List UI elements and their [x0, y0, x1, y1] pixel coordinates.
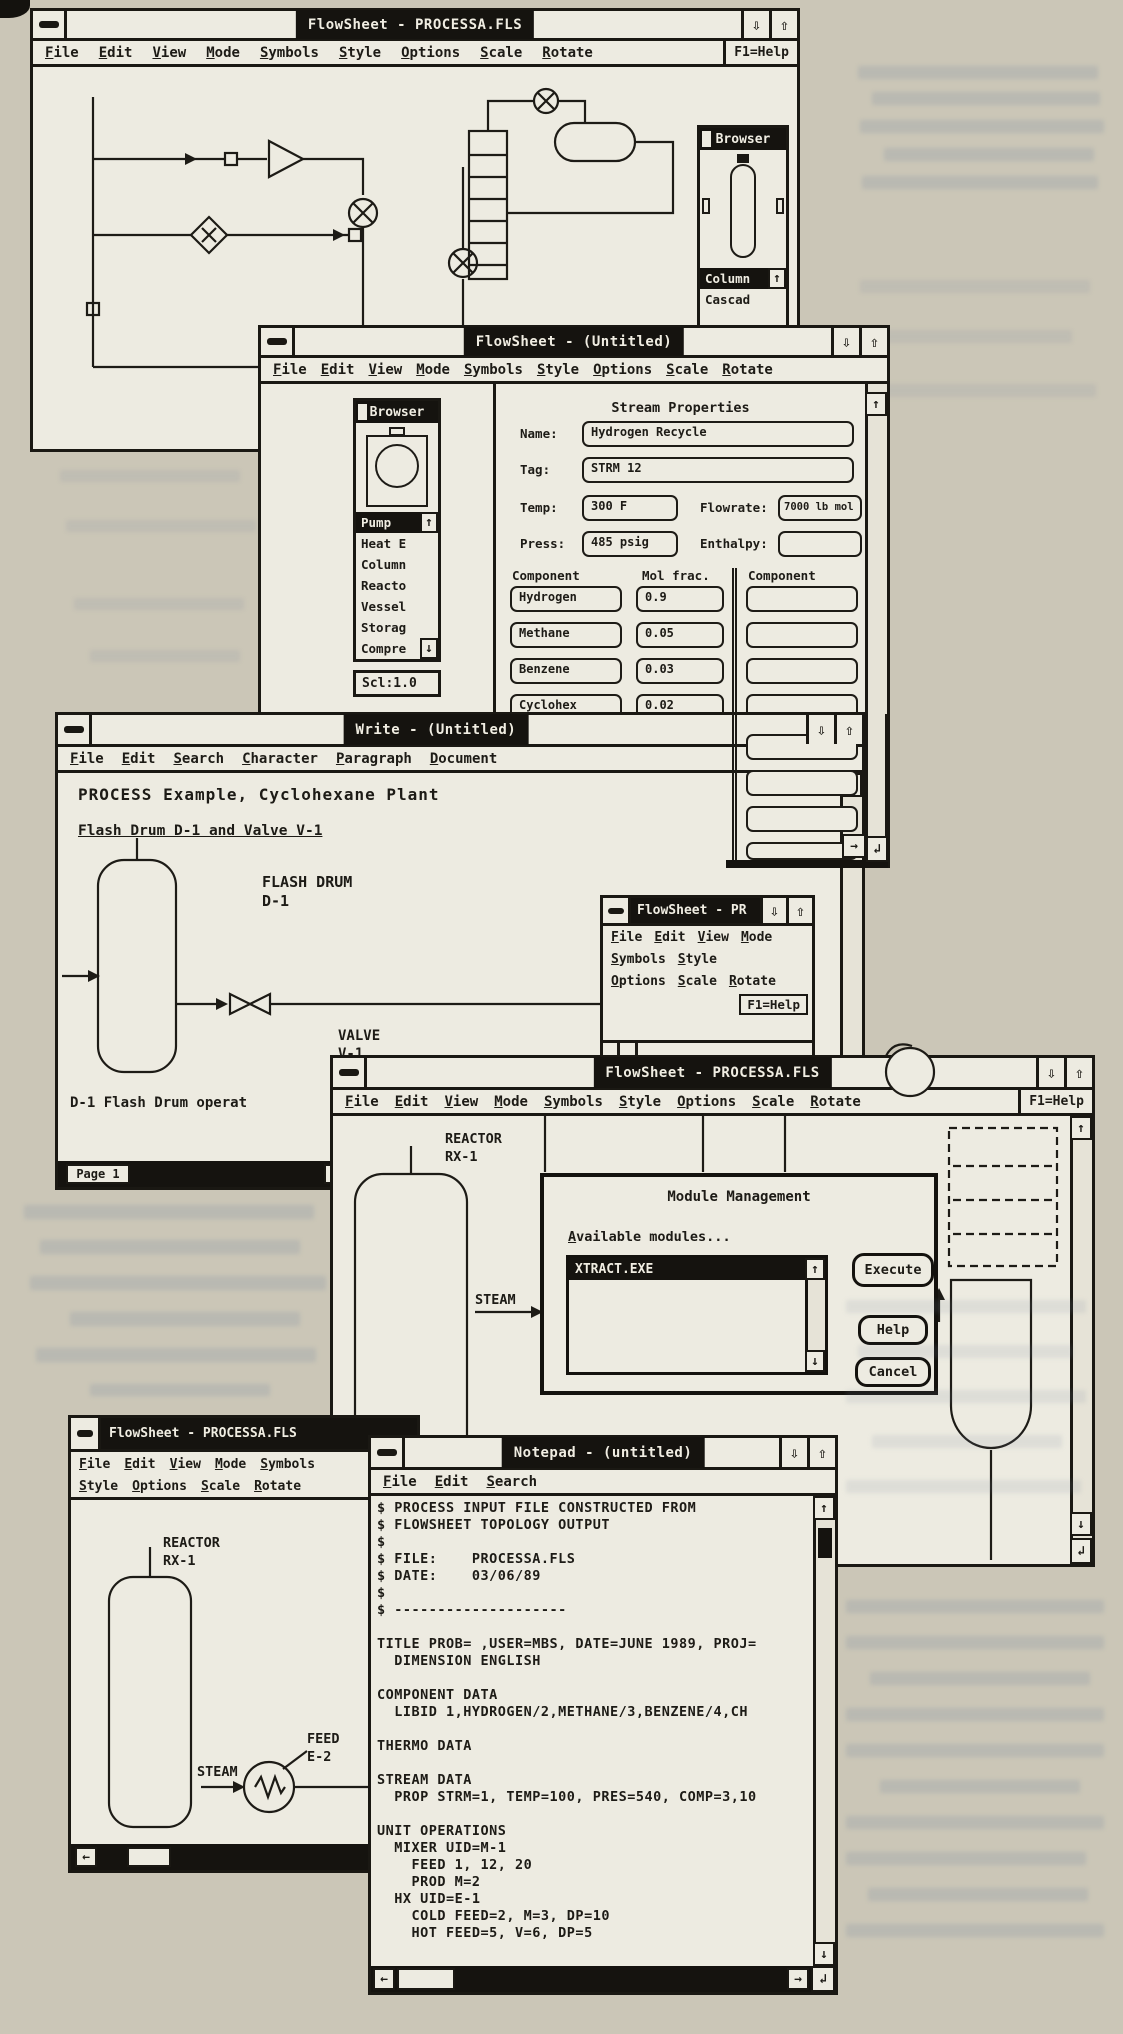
horizontal-scrollbar[interactable]: ← → ↲ — [371, 1966, 835, 1992]
symbol-list: Pump Heat E Column Reacto Vessel Storag … — [356, 512, 438, 659]
minimize-button[interactable]: ⇩ — [741, 11, 769, 38]
scroll-right-button[interactable]: → — [842, 834, 866, 858]
menu-mode[interactable]: Mode — [741, 930, 772, 945]
left-arrow-icon: ← — [82, 1851, 90, 1864]
menu-bar: File Edit View Mode Symbols Style Option… — [261, 358, 887, 384]
menu-file[interactable]: File — [79, 1457, 110, 1472]
menu-bar: File Edit Search Character Paragraph Doc… — [58, 747, 862, 773]
menu-symbols[interactable]: Symbols — [464, 362, 523, 378]
modules-list-label: Available modules... — [568, 1229, 731, 1245]
panel-heading: Stream Properties — [496, 400, 865, 416]
system-menu-button[interactable] — [603, 898, 631, 923]
maximize-button[interactable]: ⇧ — [807, 1438, 835, 1467]
system-menu-icon — [608, 908, 624, 914]
minimize-button[interactable]: ⇩ — [779, 1438, 807, 1467]
scroll-down-button[interactable]: ↓ — [813, 1942, 835, 1966]
col-header-component-2: Component — [748, 568, 816, 583]
corner-arrow-icon: ↲ — [1077, 1545, 1085, 1558]
drum-label: FLASH DRUM D-1 — [262, 873, 352, 911]
up-arrow-icon: ↑ — [773, 272, 781, 285]
menu-view[interactable]: View — [444, 1094, 478, 1110]
menu-style[interactable]: Style — [537, 362, 579, 378]
modules-listbox[interactable]: XTRACT.EXE ↑ ↓ — [566, 1255, 828, 1375]
cancel-button[interactable]: Cancel — [855, 1357, 931, 1387]
menu-rotate[interactable]: Rotate — [254, 1479, 301, 1494]
scroll-down-button[interactable]: ↓ — [1070, 1512, 1092, 1536]
component-field[interactable]: Hydrogen — [510, 586, 622, 612]
side-tab-icon — [702, 198, 710, 214]
execute-button[interactable]: Execute — [852, 1253, 934, 1287]
window-title: FlowSheet - PR — [631, 898, 760, 923]
steam-label: STEAM — [475, 1292, 516, 1308]
menu-bar-row2: Symbols Style — [603, 948, 812, 970]
list-item-cascad[interactable]: Cascad — [700, 289, 786, 310]
f1-help-label: F1=Help — [723, 41, 797, 64]
resize-corner[interactable]: ↲ — [1070, 1538, 1092, 1564]
scrollbar-thumb[interactable] — [397, 1968, 455, 1990]
menu-scale[interactable]: Scale — [480, 45, 522, 61]
menu-bar: File Edit View Mode Symbols Style Option… — [33, 41, 797, 67]
menu-view[interactable]: View — [170, 1457, 201, 1472]
menu-edit[interactable]: Edit — [124, 1457, 155, 1472]
scroll-down-button[interactable]: ↓ — [805, 1350, 825, 1372]
menu-file[interactable]: File — [70, 751, 104, 767]
page-status: Page 1 — [66, 1164, 130, 1184]
window-title: Write - (Untitled) — [344, 714, 529, 745]
module-management-dialog: Module Management Available modules... X… — [540, 1173, 938, 1395]
molfrac-field[interactable]: 0.03 — [636, 658, 724, 684]
menu-file[interactable]: File — [45, 45, 79, 61]
right-arrow-icon: → — [850, 840, 858, 853]
horizontal-scrollbar[interactable]: ← — [71, 1844, 417, 1870]
listbox-scrollbar[interactable]: ↑ ↓ — [805, 1258, 825, 1372]
pump-circle-icon — [375, 444, 419, 488]
scroll-up-button[interactable]: ↑ — [768, 268, 786, 289]
menu-view[interactable]: View — [368, 362, 402, 378]
menu-rotate[interactable]: Rotate — [542, 45, 593, 61]
vertical-scrollbar[interactable]: ↑ ↓ ↲ — [1070, 1116, 1092, 1564]
f1-help-label: F1=Help — [739, 994, 808, 1015]
minimize-button[interactable]: ⇩ — [1036, 1058, 1064, 1087]
temp-label: Temp: — [520, 500, 558, 515]
maximize-icon: ⇧ — [780, 16, 789, 34]
corner-arrow-icon: ↲ — [873, 843, 881, 856]
minimize-icon: ⇩ — [752, 16, 761, 34]
minimize-icon: ⇩ — [1047, 1064, 1056, 1082]
system-menu-button[interactable] — [371, 1438, 405, 1467]
browser-panel: Browser Column Cascad ↑ — [697, 125, 789, 332]
titlebar[interactable]: FlowSheet - PR ⇩ ⇧ — [603, 898, 812, 926]
down-arrow-icon: ↓ — [820, 1948, 828, 1961]
menu-mode[interactable]: Mode — [206, 45, 240, 61]
menu-options[interactable]: Options — [611, 974, 666, 989]
window-title: FlowSheet - PROCESSA.FLS — [296, 10, 534, 39]
system-menu-button[interactable] — [333, 1058, 367, 1087]
list-item-column[interactable]: Column — [356, 554, 438, 575]
flowsheet-drawing — [71, 1503, 417, 1844]
scroll-up-button[interactable]: ↑ — [420, 512, 438, 533]
name-field[interactable]: Hydrogen Recycle — [582, 421, 854, 447]
menu-scale[interactable]: Scale — [678, 974, 717, 989]
resize-corner[interactable]: ↲ — [866, 836, 888, 862]
menu-file[interactable]: File — [345, 1094, 379, 1110]
menu-mode[interactable]: Mode — [416, 362, 450, 378]
menu-symbols[interactable]: Symbols — [544, 1094, 603, 1110]
maximize-icon: ⇧ — [818, 1444, 827, 1462]
enthalpy-label: Enthalpy: — [700, 536, 768, 551]
minimize-icon: ⇩ — [770, 902, 779, 920]
maximize-icon: ⇧ — [845, 721, 854, 739]
window-title: FlowSheet - (Untitled) — [464, 327, 684, 356]
menu-style[interactable]: Style — [79, 1479, 118, 1494]
side-tab-icon — [776, 198, 784, 214]
resize-corner[interactable]: ↲ — [811, 1966, 835, 1992]
scroll-up-button[interactable]: ↑ — [805, 1258, 825, 1280]
scroll-up-button[interactable]: ↑ — [1070, 1116, 1092, 1140]
left-arrow-icon: ← — [380, 1973, 388, 1986]
symbol-preview — [356, 423, 438, 515]
pump-symbol-overlay — [874, 1034, 944, 1104]
menu-rotate[interactable]: Rotate — [810, 1094, 861, 1110]
component-field-empty[interactable] — [746, 658, 858, 684]
maximize-button[interactable]: ⇧ — [769, 11, 797, 38]
menu-style[interactable]: Style — [619, 1094, 661, 1110]
scroll-left-button[interactable]: ← — [75, 1847, 97, 1867]
col-header-component: Component — [512, 568, 580, 583]
menu-scale[interactable]: Scale — [666, 362, 708, 378]
f1-help-label: F1=Help — [1018, 1090, 1092, 1113]
minimize-button[interactable]: ⇩ — [760, 898, 786, 923]
menu-options[interactable]: Options — [132, 1479, 187, 1494]
list-item-reacto[interactable]: Reacto — [356, 575, 438, 596]
menu-bar-row3: Options Scale Rotate — [603, 970, 812, 992]
menu-style[interactable]: Style — [339, 45, 381, 61]
scale-readout: Scl:1.0 — [353, 670, 441, 697]
dialog-title: Module Management — [544, 1189, 934, 1205]
steam-label: STEAM — [197, 1764, 238, 1780]
menu-bar-row1: File Edit View Mode — [603, 926, 812, 948]
browser-title[interactable]: Browser — [356, 401, 438, 423]
list-item-heat-e[interactable]: Heat E — [356, 533, 438, 554]
vertical-scrollbar[interactable]: ↑ ↓ — [813, 1496, 835, 1966]
minimize-button[interactable]: ⇩ — [831, 328, 859, 355]
menu-symbols[interactable]: Symbols — [260, 45, 319, 61]
name-label: Name: — [520, 426, 558, 441]
component-field-empty[interactable] — [746, 770, 858, 796]
maximize-button[interactable]: ⇧ — [859, 328, 887, 355]
component-field-empty[interactable] — [746, 806, 858, 832]
titlebar[interactable]: FlowSheet - PROCESSA.FLS ⇩ ⇧ — [33, 11, 797, 41]
browser-panel: Browser Pump Heat E Column Reacto Vessel… — [353, 398, 441, 662]
up-arrow-icon: ↑ — [820, 1502, 828, 1515]
symbol-nozzle-icon — [737, 154, 749, 163]
menu-scale[interactable]: Scale — [201, 1479, 240, 1494]
browser-title[interactable]: Browser — [700, 128, 786, 150]
menu-scale[interactable]: Scale — [752, 1094, 794, 1110]
molfrac-field[interactable]: 0.05 — [636, 622, 724, 648]
window-bottom-border — [726, 860, 888, 868]
menu-search[interactable]: Search — [173, 751, 224, 767]
menu-bar-row1: File Edit View Mode Symbols — [71, 1452, 417, 1476]
titlebar[interactable]: FlowSheet - PROCESSA.FLS ⇩ ⇧ — [333, 1058, 1092, 1090]
titlebar[interactable]: FlowSheet - (Untitled) ⇩ ⇧ — [261, 328, 887, 358]
tag-field[interactable]: STRM 12 — [582, 457, 854, 483]
up-arrow-icon: ↑ — [1077, 1122, 1085, 1135]
menu-file[interactable]: File — [611, 930, 642, 945]
flowrate-label: Flowrate: — [700, 500, 768, 515]
titlebar[interactable]: FlowSheet - PROCESSA.FLS — [71, 1418, 417, 1452]
reactor-label: REACTOR RX-1 — [445, 1130, 502, 1166]
window-flowsheet-pr: FlowSheet - PR ⇩ ⇧ File Edit View Mode S… — [600, 895, 815, 1067]
menu-rotate[interactable]: Rotate — [722, 362, 773, 378]
component-field-empty[interactable] — [746, 622, 858, 648]
up-arrow-icon: ↑ — [872, 398, 880, 411]
menu-symbols[interactable]: Symbols — [611, 952, 666, 967]
menu-edit[interactable]: Edit — [122, 751, 156, 767]
menu-file[interactable]: File — [273, 362, 307, 378]
help-button[interactable]: Help — [858, 1315, 928, 1345]
maximize-icon: ⇧ — [870, 333, 879, 351]
scrollbar-thumb[interactable] — [127, 1847, 171, 1867]
system-menu-button[interactable] — [71, 1418, 101, 1449]
down-arrow-icon: ↓ — [425, 642, 433, 655]
corner-arrow-icon: ↲ — [819, 1973, 827, 1986]
down-arrow-icon: ↓ — [1077, 1518, 1085, 1531]
system-menu-button[interactable] — [261, 328, 295, 355]
scrollbar-thumb[interactable] — [818, 1528, 832, 1558]
menu-document[interactable]: Document — [430, 751, 497, 767]
menu-bar: File Edit Search — [371, 1470, 835, 1496]
scroll-right-button[interactable]: → — [787, 1968, 809, 1990]
notepad-text[interactable]: $ PROCESS INPUT FILE CONSTRUCTED FROM $ … — [377, 1500, 811, 1962]
system-menu-icon — [64, 726, 84, 733]
menu-symbols[interactable]: Symbols — [260, 1457, 315, 1472]
system-menu-icon — [39, 21, 59, 28]
menu-view[interactable]: View — [698, 930, 729, 945]
column-symbol-icon — [730, 164, 756, 258]
flowrate-field[interactable]: 7000 lb mol — [778, 495, 862, 521]
system-menu-icon — [339, 1069, 359, 1076]
col-header-molfrac: Mol frac. — [642, 568, 710, 583]
feed-label: FEED E-2 — [307, 1730, 340, 1766]
window-title: FlowSheet - PROCESSA.FLS — [593, 1057, 831, 1088]
menu-character[interactable]: Character — [242, 751, 318, 767]
molfrac-field[interactable]: 0.9 — [636, 586, 724, 612]
menu-paragraph[interactable]: Paragraph — [336, 751, 412, 767]
menu-edit[interactable]: Edit — [395, 1094, 429, 1110]
menu-rotate[interactable]: Rotate — [729, 974, 776, 989]
scan-corner-artifact — [0, 0, 30, 18]
window-notepad: Notepad - (untitled) ⇩ ⇧ File Edit Searc… — [368, 1435, 838, 1995]
system-menu-icon — [377, 1449, 397, 1456]
window-title: Notepad - (untitled) — [502, 1437, 705, 1468]
maximize-button[interactable]: ⇧ — [786, 898, 812, 923]
menu-file[interactable]: File — [383, 1474, 417, 1490]
press-label: Press: — [520, 536, 565, 551]
scroll-up-button[interactable]: ↑ — [865, 392, 887, 416]
menu-options[interactable]: Options — [593, 362, 652, 378]
minimize-icon: ⇩ — [842, 333, 851, 351]
maximize-icon: ⇧ — [1075, 1064, 1084, 1082]
list-item-module[interactable]: XTRACT.EXE — [569, 1258, 805, 1280]
menu-view[interactable]: View — [152, 45, 186, 61]
maximize-button[interactable]: ⇧ — [1064, 1058, 1092, 1087]
tag-label: Tag: — [520, 462, 550, 477]
scroll-down-button[interactable]: ↓ — [420, 638, 438, 659]
scanned-page: { "icons": { "minimize": "⇩", "maximize"… — [0, 0, 1123, 2034]
menu-bar-row2: Style Options Scale Rotate — [71, 1476, 417, 1500]
minimize-icon: ⇩ — [817, 721, 826, 739]
minimize-button[interactable]: ⇩ — [806, 715, 834, 744]
system-menu-button[interactable] — [58, 715, 92, 744]
up-arrow-icon: ↑ — [425, 516, 433, 529]
menu-edit[interactable]: Edit — [654, 930, 685, 945]
right-arrow-icon: → — [794, 1973, 802, 1986]
minimize-icon: ⇩ — [790, 1444, 799, 1462]
menu-mode[interactable]: Mode — [215, 1457, 246, 1472]
titlebar[interactable]: Write - (Untitled) ⇩ ⇧ — [58, 715, 862, 747]
system-menu-icon — [77, 1430, 93, 1437]
document-caption: D-1 Flash Drum operat — [70, 1095, 247, 1111]
menu-search[interactable]: Search — [486, 1474, 537, 1490]
system-menu-button[interactable] — [33, 11, 67, 38]
menu-mode[interactable]: Mode — [494, 1094, 528, 1110]
reactor-label: REACTOR RX-1 — [163, 1534, 220, 1570]
temp-field[interactable]: 300 F — [582, 495, 678, 521]
enthalpy-field[interactable] — [778, 531, 862, 557]
titlebar[interactable]: Notepad - (untitled) ⇩ ⇧ — [371, 1438, 835, 1470]
menu-options[interactable]: Options — [677, 1094, 736, 1110]
maximize-icon: ⇧ — [796, 902, 805, 920]
menu-options[interactable]: Options — [401, 45, 460, 61]
component-field[interactable]: Methane — [510, 622, 622, 648]
menu-edit[interactable]: Edit — [435, 1474, 469, 1490]
press-field[interactable]: 485 psig — [582, 531, 678, 557]
symbol-preview — [700, 150, 786, 268]
menu-edit[interactable]: Edit — [321, 362, 355, 378]
down-arrow-icon: ↓ — [811, 1355, 819, 1368]
menu-style[interactable]: Style — [678, 952, 717, 967]
document-heading: PROCESS Example, Cyclohexane Plant — [78, 785, 440, 804]
component-field-empty[interactable] — [746, 586, 858, 612]
system-menu-icon — [267, 338, 287, 345]
component-field[interactable]: Benzene — [510, 658, 622, 684]
scroll-up-button[interactable]: ↑ — [813, 1496, 835, 1520]
menu-bar: File Edit View Mode Symbols Style Option… — [333, 1090, 1092, 1116]
column-divider — [732, 714, 737, 860]
list-item-storag[interactable]: Storag — [356, 617, 438, 638]
up-arrow-icon: ↑ — [811, 1263, 819, 1276]
menu-edit[interactable]: Edit — [99, 45, 133, 61]
scroll-left-button[interactable]: ← — [373, 1968, 395, 1990]
list-item-vessel[interactable]: Vessel — [356, 596, 438, 617]
maximize-button[interactable]: ⇧ — [834, 715, 862, 744]
